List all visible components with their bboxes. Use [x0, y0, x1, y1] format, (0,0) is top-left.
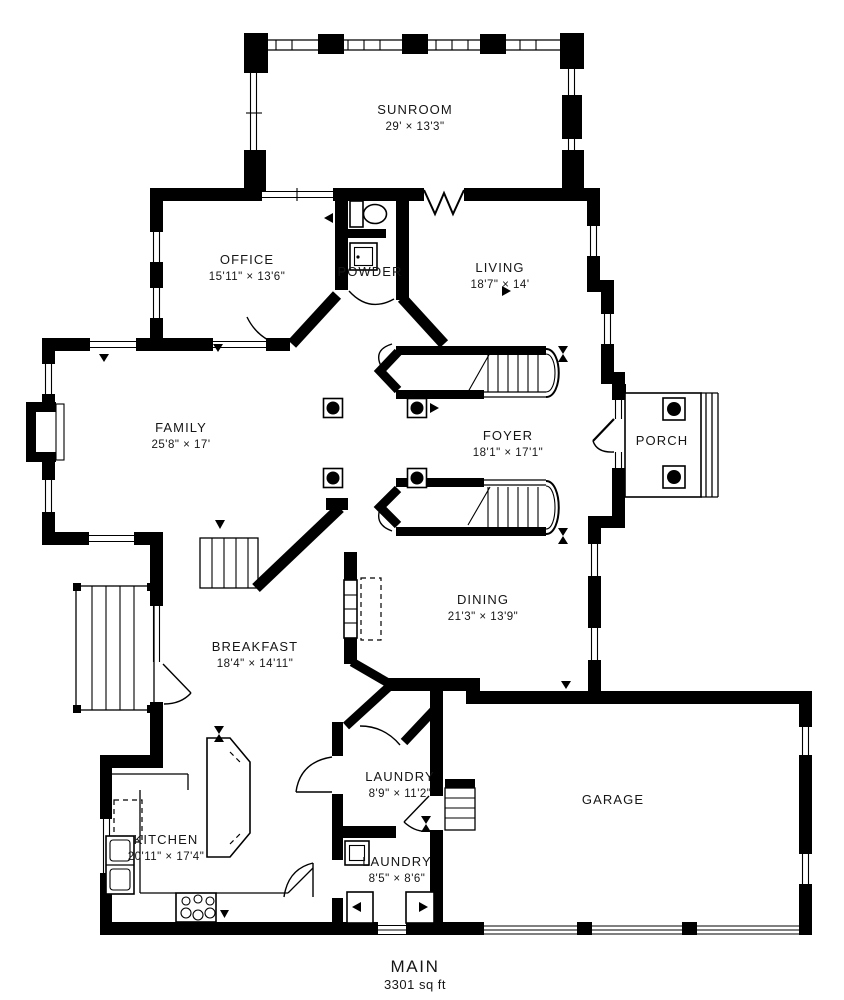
- living-label: LIVING: [475, 260, 524, 275]
- family-label: FAMILY: [155, 420, 207, 435]
- porch-label: PORCH: [636, 433, 688, 448]
- laundry-lower-dims: 8'5" × 8'6": [369, 873, 426, 885]
- floor-name: MAIN: [391, 957, 440, 976]
- garage-label: GARAGE: [582, 792, 644, 807]
- sunroom-dims: 29' × 13'3": [385, 121, 444, 133]
- office-label: OFFICE: [220, 252, 274, 267]
- breakfast-dims: 18'4" × 14'11": [217, 658, 294, 670]
- exterior-walls: [42, 188, 812, 935]
- fireplace: [26, 402, 64, 462]
- stairs-upper: [379, 344, 559, 399]
- floor-plan-svg: SUNROOM 29' × 13'3" OFFICE 15'11" × 13'6…: [0, 0, 844, 1000]
- floor-area: 3301 sq ft: [384, 977, 446, 992]
- breakfast-label: BREAKFAST: [212, 639, 298, 654]
- dining-label: DINING: [457, 592, 509, 607]
- stairs-garage-entry: [445, 779, 475, 830]
- living-dims: 18'7" × 14': [470, 279, 529, 291]
- family-dims: 25'8" × 17': [151, 439, 210, 451]
- dining-dims: 21'3" × 13'9": [448, 611, 519, 623]
- stairs-lower: [379, 478, 559, 536]
- office-dims: 15'11" × 13'6": [209, 271, 286, 283]
- kitchen-label: KITCHEN: [134, 832, 199, 847]
- laundry-lower-label: LAUNDRY: [362, 854, 432, 869]
- stairs-deck: [73, 583, 155, 713]
- powder-label: POWDER: [337, 264, 402, 279]
- kitchen-dims: 20'11" × 17'4": [128, 851, 205, 863]
- sunroom-label: SUNROOM: [377, 102, 453, 117]
- structural-columns: [324, 399, 440, 488]
- foyer-dims: 18'1" × 17'1": [473, 447, 544, 459]
- laundry-upper-label: LAUNDRY: [365, 769, 435, 784]
- foyer-label: FOYER: [483, 428, 533, 443]
- floor-title: MAIN 3301 sq ft: [384, 957, 446, 992]
- stairs-basement: [200, 520, 258, 588]
- laundry-upper-dims: 8'9" × 11'2": [369, 788, 432, 800]
- interior-walls: [256, 188, 444, 922]
- floor-plan-page: SUNROOM 29' × 13'3" OFFICE 15'11" × 13'6…: [0, 0, 844, 1000]
